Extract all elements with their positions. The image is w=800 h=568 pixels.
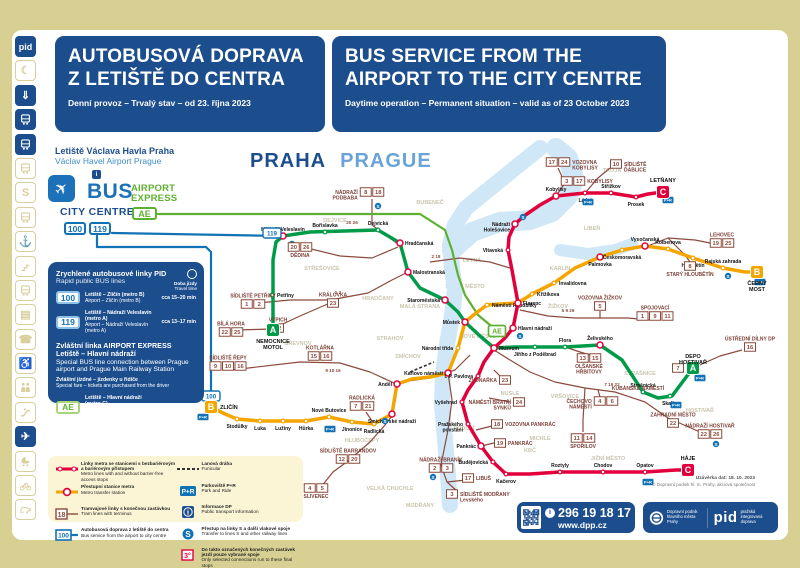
station (634, 195, 638, 199)
s-train-icon[interactable]: S (15, 182, 36, 203)
svg-text:Vltavská: Vltavská (483, 248, 504, 254)
legend-item-tram-term: 18Tramvajové linky s konečnou zastávkouT… (55, 506, 176, 525)
svg-text:P+R: P+R (696, 376, 704, 381)
svg-text:HRADČANY: HRADČANY (362, 295, 394, 302)
svg-text:17: 17 (576, 179, 582, 185)
tram-route-numbers: 20 261 29 10 165 9 267 19 222 18 (325, 220, 620, 387)
svg-text:Anděl: Anděl (378, 382, 393, 388)
title-czech: AUTOBUSOVÁ DOPRAVAZ LETIŠTĚ DO CENTRA (68, 45, 312, 91)
svg-text:7: 7 (676, 366, 679, 372)
svg-text:C: C (660, 187, 667, 197)
route-info-box: Zrychlené autobusové linky PID Rapid pub… (48, 262, 204, 403)
route-row-119: 119Letiště – Nádraží Veleslavín (metro A… (56, 310, 196, 334)
station (235, 417, 239, 421)
svg-text:20 26: 20 26 (346, 220, 358, 225)
svg-text:S: S (521, 215, 524, 220)
svg-text:2 18: 2 18 (432, 254, 441, 259)
transfer-icon (55, 484, 81, 503)
svg-text:16: 16 (747, 345, 754, 351)
sidebar: pid☾⇓S⚓▤☎♿✈ (15, 36, 37, 524)
svg-text:Hradčanská: Hradčanská (405, 241, 434, 247)
svg-text:15: 15 (592, 356, 599, 362)
svg-text:23: 23 (502, 378, 509, 384)
svg-text:S: S (518, 334, 521, 339)
svg-text:Smíchovské nádraží: Smíchovské nádraží (368, 419, 417, 425)
footer-contact: i296 19 18 17 www.dpp.cz (517, 502, 635, 533)
airport-express-heading-en: Special BUS line connection between Prag… (56, 359, 196, 373)
station (620, 248, 624, 252)
station (376, 228, 380, 232)
car-icon[interactable] (15, 280, 36, 301)
direction-icon[interactable]: ⇓ (15, 85, 36, 106)
svg-text:NÁMĚSTÍ BRATŘÍSYNKŮ: NÁMĚSTÍ BRATŘÍSYNKŮ (469, 398, 512, 412)
bus-119 (112, 233, 283, 236)
svg-text:5 9 26: 5 9 26 (562, 308, 575, 313)
svg-text:100: 100 (58, 533, 69, 540)
svg-text:Křižíkova: Křižíkova (537, 292, 559, 298)
title-english: BUS SERVICE FROM THEAIRPORT TO THE CITY … (345, 45, 653, 91)
legend-item-funicular: Lanová dráhaFunicular (176, 461, 297, 480)
svg-text:16: 16 (323, 354, 330, 360)
svg-text:100: 100 (206, 393, 217, 400)
svg-text:NÁDRAŽÍ HOSTIVAŘ: NÁDRAŽÍ HOSTIVAŘ (685, 421, 735, 429)
transfer-station (642, 243, 648, 249)
svg-text:SLIVENEC: SLIVENEC (303, 494, 328, 500)
phone-number: 296 19 18 17 (558, 506, 631, 520)
svg-text:Kobylisy: Kobylisy (546, 187, 567, 193)
map-title: PRAHAPRAGUE (250, 150, 432, 173)
svg-text:24: 24 (561, 160, 568, 166)
svg-text:VOZOVNA ŽIŽKOV: VOZOVNA ŽIŽKOV (578, 293, 623, 301)
svg-text:i: i (187, 509, 189, 517)
svg-text:Lužiny: Lužiny (275, 426, 291, 432)
svg-text:Kolbenova: Kolbenova (655, 240, 681, 246)
svg-text:11: 11 (664, 314, 671, 320)
svg-text:18: 18 (375, 190, 382, 196)
station (504, 472, 508, 476)
svg-text:Roztyly: Roztyly (551, 463, 569, 469)
svg-text:19: 19 (713, 241, 720, 247)
svg-text:Flora: Flora (559, 338, 571, 344)
svg-text:S: S (185, 529, 191, 538)
svg-text:Želivského: Želivského (587, 334, 613, 342)
svg-text:Malostranská: Malostranská (413, 270, 445, 276)
station (601, 470, 605, 474)
family-icon[interactable] (15, 377, 36, 398)
info-icon: i (176, 504, 202, 523)
route-row-100: 100Letiště – Zličín (metro B)Airport – Z… (56, 291, 196, 304)
legend-item-info: iInformace DPPublic transport informatio… (176, 504, 297, 523)
transfer-station (491, 345, 497, 351)
airport-express-heading: Zvláštní linka AIRPORT EXPRESSLetiště – … (56, 342, 196, 358)
svg-text:SÍDLIŠTĚ ŘEPY: SÍDLIŠTĚ ŘEPY (209, 353, 247, 361)
legend-item-transfer: Přestupní stanice metraMetro transfer st… (55, 484, 176, 503)
station (258, 419, 262, 423)
svg-text:VYPICH: VYPICH (269, 317, 288, 323)
svg-text:STRAHOV: STRAHOV (377, 336, 404, 342)
svg-text:MODŘANY: MODŘANY (406, 501, 435, 509)
svg-text:9 10 16: 9 10 16 (325, 368, 341, 373)
website-link[interactable]: www.dpp.cz (558, 520, 631, 530)
svg-text:NÁDRAŽÍ BRANÍK: NÁDRAŽÍ BRANÍK (419, 455, 463, 463)
svg-text:STŘEŠOVICE: STŘEŠOVICE (304, 264, 340, 272)
svg-text:B: B (754, 267, 761, 277)
station (552, 281, 556, 285)
pid-logo[interactable]: pid (15, 36, 36, 57)
fare-note-en: Special fare – tickets are purchased fro… (56, 383, 196, 389)
svg-text:15: 15 (311, 354, 318, 360)
station (609, 191, 613, 195)
svg-text:3°: 3° (184, 552, 191, 560)
svg-text:A: A (270, 325, 277, 335)
city-centre-label: CITY CENTRE (60, 206, 134, 218)
svg-text:Radlická: Radlická (364, 429, 385, 435)
svg-text:Vyšehrad: Vyšehrad (435, 400, 457, 406)
pid-logo: pid (714, 509, 738, 526)
svg-text:Chodov: Chodov (594, 463, 613, 469)
bus-icon[interactable] (15, 134, 36, 155)
station (304, 419, 308, 423)
svg-text:KOBYLISY: KOBYLISY (587, 179, 613, 185)
airport-express-label: AIRPORTEXPRESS (131, 184, 177, 203)
svg-text:VOZOVNAKOBYLISY: VOZOVNAKOBYLISY (572, 160, 598, 172)
svg-text:ZAHRADNÍ MĚSTO: ZAHRADNÍ MĚSTO (650, 410, 695, 418)
svg-text:P+R: P+R (672, 403, 680, 408)
pid-name: pražská integrovanádoprava (741, 510, 772, 524)
svg-text:S: S (376, 204, 379, 209)
svg-text:20: 20 (291, 245, 297, 251)
airport-icon[interactable]: ✈ (15, 426, 36, 447)
svg-text:Národní třída: Národní třída (422, 346, 453, 352)
info-icon: i (545, 508, 555, 518)
transfer-station (515, 300, 521, 306)
svg-text:23: 23 (330, 301, 337, 307)
svg-text:7: 7 (354, 404, 357, 410)
subtitle-english: Daytime operation – Permanent situation … (345, 98, 653, 108)
footer-brand: Dopravní podnikhlavního města Prahy pid … (643, 502, 778, 533)
dog-icon[interactable] (15, 499, 36, 520)
svg-text:NÁDRAŽÍPODBABA: NÁDRAŽÍPODBABA (332, 188, 358, 202)
svg-text:22: 22 (670, 421, 676, 427)
metro-line-icon (55, 461, 81, 480)
svg-text:Budějovická: Budějovická (459, 460, 489, 466)
svg-text:16: 16 (237, 364, 244, 370)
station (466, 422, 470, 426)
svg-text:P+R: P+R (584, 200, 592, 205)
svg-text:19: 19 (497, 441, 504, 447)
svg-text:Uzávěrka dat: 18. 10. 2023: Uzávěrka dat: 18. 10. 2023 (696, 475, 756, 481)
transfer-station (442, 297, 448, 303)
transfer-station (597, 342, 603, 348)
svg-text:ZLIČÍN: ZLIČÍN (220, 403, 238, 411)
pram-icon[interactable] (15, 451, 36, 472)
funicular-icon[interactable] (15, 207, 36, 228)
svg-text:DĚDINA: DĚDINA (290, 251, 310, 259)
legend: Linky metra se stanicemi s bezbariérovým… (48, 456, 303, 522)
svg-text:BÍLÁ HORA: BÍLÁ HORA (217, 319, 245, 327)
svg-text:ČECHOVONÁMĚSTÍ: ČECHOVONÁMĚSTÍ (566, 398, 592, 411)
s-icon: S (176, 526, 202, 545)
svg-text:2: 2 (433, 466, 436, 472)
svg-text:26: 26 (303, 245, 310, 251)
trolleybus-icon[interactable] (15, 109, 36, 130)
ticket-icon[interactable]: ▤ (15, 304, 36, 325)
pr-icon: P+R (176, 483, 202, 502)
svg-text:PANKRÁC: PANKRÁC (508, 440, 533, 447)
svg-text:Luka: Luka (254, 426, 266, 432)
station (691, 256, 695, 260)
svg-text:Staroměstská: Staroměstská (407, 298, 440, 304)
svg-text:ZVONAŘKA: ZVONAŘKA (469, 376, 498, 384)
station (327, 415, 331, 419)
svg-text:Invalidovna: Invalidovna (559, 281, 587, 287)
route-119-badge: 119 (89, 222, 111, 235)
svg-text:Prosek: Prosek (628, 202, 645, 208)
station (583, 191, 587, 195)
svg-text:S: S (383, 419, 386, 424)
svg-text:Nové Butovice: Nové Butovice (312, 408, 347, 414)
svg-text:MICHLE: MICHLE (529, 436, 550, 442)
svg-text:22: 22 (701, 432, 707, 438)
route-100-badge: 100 (64, 222, 86, 235)
ae-route-badge: AE (132, 207, 157, 220)
svg-text:S: S (726, 274, 729, 279)
svg-text:B: B (208, 402, 215, 412)
station (456, 346, 460, 350)
station (643, 470, 647, 474)
svg-text:20: 20 (351, 457, 357, 463)
stairs-icon[interactable] (15, 256, 36, 277)
transfer-station (405, 269, 411, 275)
svg-text:Kačerov: Kačerov (496, 479, 516, 485)
svg-text:Rajská zahrada: Rajská zahrada (705, 259, 742, 265)
svg-text:Stodůlky: Stodůlky (226, 423, 247, 430)
station (668, 394, 672, 398)
header-czech: AUTOBUSOVÁ DOPRAVAZ LETIŠTĚ DO CENTRA De… (55, 36, 325, 132)
svg-text:MALÁ STRANA: MALÁ STRANA (400, 303, 440, 310)
svg-text:Palmovka: Palmovka (588, 262, 612, 268)
svg-text:10: 10 (613, 162, 619, 168)
station (491, 460, 495, 464)
svg-text:Karlovo náměstí: Karlovo náměstí (404, 371, 444, 377)
station (558, 470, 562, 474)
svg-text:S: S (714, 442, 717, 447)
svg-text:BUBENEČ: BUBENEČ (416, 199, 443, 206)
station (530, 292, 534, 296)
svg-text:KRČ: KRČ (524, 447, 536, 454)
svg-text:2: 2 (258, 302, 261, 308)
svg-text:C: C (685, 465, 692, 475)
svg-text:Florenc: Florenc (523, 301, 541, 307)
svg-text:JIŽNÍ MĚSTO: JIŽNÍ MĚSTO (591, 454, 626, 462)
airport-heading: Letiště Václava Havla Praha Václav Havel… (55, 146, 174, 166)
svg-text:17: 17 (549, 160, 555, 166)
svg-text:Můstek: Můstek (443, 319, 460, 326)
header-english: BUS SERVICE FROM THEAIRPORT TO THE CITY … (332, 36, 666, 132)
info-icon: i (92, 170, 101, 179)
funicular-icon (176, 461, 202, 480)
svg-text:Pankrác: Pankrác (457, 444, 477, 450)
svg-text:STARÝ HLOUBĚTÍN: STARÝ HLOUBĚTÍN (666, 270, 714, 278)
transfer-station (389, 411, 395, 417)
station (506, 248, 510, 252)
night-service-icon[interactable]: ☾ (15, 60, 36, 81)
station (666, 247, 670, 251)
legend-item-metro-line: Linky metra se stanicemi s bezbariérovým… (55, 461, 176, 482)
transfer-station (478, 443, 484, 449)
svg-text:KARLÍN: KARLÍN (550, 264, 571, 272)
svg-text:KOTLÁŘNA: KOTLÁŘNA (306, 343, 334, 351)
station (533, 345, 537, 349)
dpp-logo (649, 509, 664, 527)
station (350, 420, 354, 424)
transfer-station (462, 319, 468, 325)
svg-text:Opatov: Opatov (636, 463, 653, 469)
subtitle-czech: Denní provoz – Trvalý stav – od 23. říjn… (68, 98, 312, 108)
svg-text:13: 13 (580, 356, 587, 362)
svg-text:NUSLE: NUSLE (501, 391, 520, 397)
svg-text:LIBUŠ: LIBUŠ (476, 474, 492, 482)
svg-text:25: 25 (725, 241, 732, 247)
bike-icon[interactable] (15, 475, 36, 496)
svg-text:Pražskéhopovstání: Pražskéhopovstání (438, 422, 464, 434)
svg-text:KRÁLOVKA: KRÁLOVKA (319, 291, 348, 298)
svg-text:DEPOHOSTIVAŘ: DEPOHOSTIVAŘ (679, 354, 707, 366)
svg-text:119: 119 (267, 230, 278, 237)
svg-text:26: 26 (713, 432, 720, 438)
svg-text:P+R: P+R (326, 427, 334, 432)
svg-text:HÁJE: HÁJE (681, 455, 696, 462)
station (563, 345, 567, 349)
svg-text:P+R: P+R (644, 480, 652, 485)
map-notes: Uzávěrka dat: 18. 10. 2023© Dopravní pod… (652, 475, 756, 487)
route-row-AE: AELetiště – Hlavní nádraží (metro C)Airp… (56, 395, 196, 419)
qr-code (521, 506, 541, 529)
svg-text:SÍDLIŠTĚ MODŘANYLevského: SÍDLIŠTĚ MODŘANYLevského (460, 490, 510, 504)
transfer-station (394, 381, 400, 387)
dpp-name: Dopravní podnikhlavního města Prahy (667, 510, 701, 524)
legend-item-s: SPřestup na linky S a další vlakové spoj… (176, 526, 297, 545)
airplane-icon: ✈ (48, 175, 75, 202)
transfer-station (510, 325, 516, 331)
transfer-station (512, 221, 518, 227)
svg-text:11: 11 (574, 436, 581, 442)
transfer-station (397, 240, 403, 246)
bus-logo: BUS (87, 180, 133, 204)
svg-text:HLUBOČEPY: HLUBOČEPY (345, 437, 380, 444)
svg-text:10: 10 (225, 364, 231, 370)
station (323, 230, 327, 234)
svg-text:RADLICKÁ: RADLICKÁ (349, 394, 375, 401)
svg-text:KUBÁNSKÉ NÁMĚSTÍ: KUBÁNSKÉ NÁMĚSTÍ (612, 384, 665, 392)
legend-item-sel: 3°Do takto označených konečných zastávek… (176, 547, 297, 568)
svg-text:Petřiny: Petřiny (277, 293, 294, 299)
svg-text:14: 14 (586, 436, 593, 442)
svg-text:P+R: P+R (199, 415, 207, 420)
svg-text:Jinonice: Jinonice (342, 427, 363, 433)
tram-icon[interactable] (15, 158, 36, 179)
sel-icon: 3° (176, 547, 202, 566)
phone-icon[interactable]: ☎ (15, 329, 36, 350)
svg-text:24: 24 (516, 400, 523, 406)
svg-text:18: 18 (494, 422, 501, 428)
svg-text:17: 17 (465, 476, 471, 482)
svg-text:AE: AE (492, 329, 502, 336)
svg-text:Hůrka: Hůrka (299, 425, 313, 432)
svg-text:Hlavní nádraží: Hlavní nádraží (518, 326, 553, 332)
tram-term-icon: 18 (55, 506, 81, 525)
svg-text:SMÍCHOV: SMÍCHOV (395, 352, 421, 360)
svg-text:ÚSTŘEDNÍ DÍLNY DP: ÚSTŘEDNÍ DÍLNY DP (725, 334, 776, 342)
station (460, 400, 464, 404)
svg-text:SÍDLIŠTĚ PETŘINY: SÍDLIŠTĚ PETŘINY (230, 291, 276, 299)
wheelchair-icon[interactable]: ♿ (15, 353, 36, 374)
svg-text:12: 12 (339, 457, 345, 463)
svg-text:SPOŘILOV: SPOŘILOV (570, 442, 597, 450)
legend-item-bus-line: 100Autobusová doprava z letiště do centr… (55, 527, 176, 546)
svg-text:VELKÁ CHUCHLE: VELKÁ CHUCHLE (366, 485, 413, 492)
svg-text:25: 25 (234, 330, 241, 336)
svg-text:VOZOVNA PANKRÁC: VOZOVNA PANKRÁC (505, 421, 556, 428)
svg-text:SÍDLIŠTĚ BARRANDOV: SÍDLIŠTĚ BARRANDOV (320, 446, 377, 454)
escalator-icon[interactable] (15, 402, 36, 423)
svg-text:SPOJOVACÍ: SPOJOVACÍ (641, 303, 670, 311)
svg-text:LEHOVEC: LEHOVEC (710, 232, 735, 238)
station (485, 303, 489, 307)
svg-text:OLŠANSKÉHŘBITOVY: OLŠANSKÉHŘBITOVY (575, 362, 603, 376)
svg-text:Dejvická: Dejvická (368, 221, 389, 227)
legend-item-pr: P+RParkoviště P+RPark and Ride (176, 483, 297, 502)
svg-text:SÍDLIŠTĚĎÁBLICE: SÍDLIŠTĚĎÁBLICE (624, 160, 647, 174)
transfer-station (553, 193, 559, 199)
svg-text:© Dopravní podnik hl. m. Prahy: © Dopravní podnik hl. m. Prahy, akciová … (652, 481, 756, 487)
boat-icon[interactable]: ⚓ (15, 231, 36, 252)
svg-text:Českomoravská: Českomoravská (603, 254, 642, 261)
travel-time-icon: Doba jízdyTravel time (174, 269, 197, 291)
bus-line-icon: 100 (55, 527, 81, 546)
svg-text:Bořislavka: Bořislavka (312, 223, 338, 229)
svg-text:18: 18 (58, 512, 66, 519)
svg-text:22: 22 (222, 330, 228, 336)
svg-text:Jiřího z Poděbrad: Jiřího z Poděbrad (514, 352, 556, 358)
svg-text:S: S (431, 475, 434, 480)
svg-text:LIBEŇ: LIBEŇ (584, 224, 601, 232)
station (721, 266, 725, 270)
station (281, 419, 285, 423)
svg-text:21: 21 (365, 404, 372, 410)
svg-text:ČERNÝMOST: ČERNÝMOST (747, 280, 767, 293)
svg-text:LETŇANY: LETŇANY (650, 176, 676, 184)
svg-text:P+R: P+R (181, 488, 194, 495)
